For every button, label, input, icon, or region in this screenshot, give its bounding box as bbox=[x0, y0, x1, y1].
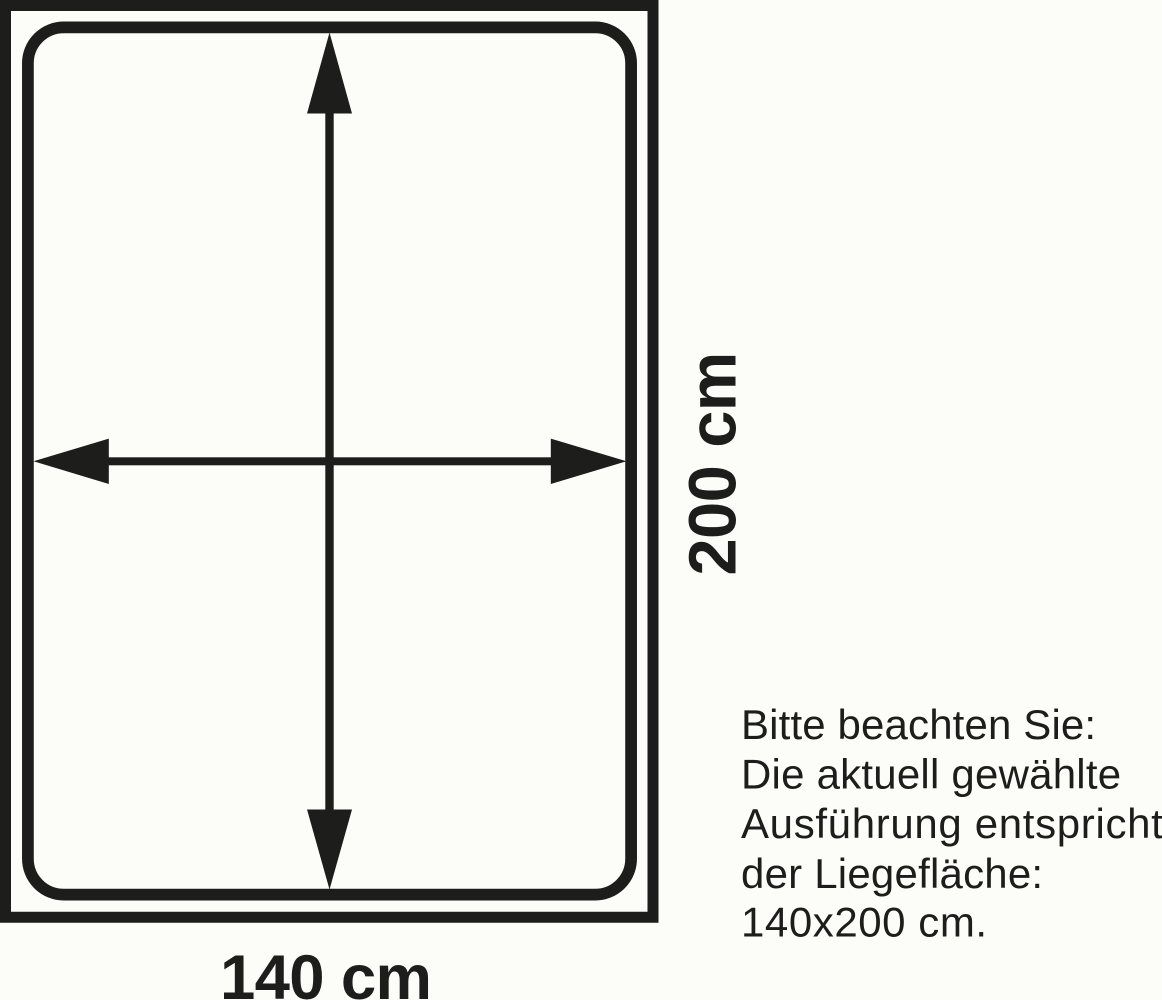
svg-text:200 cm: 200 cm bbox=[675, 352, 750, 576]
svg-text:Bitte beachten Sie:: Bitte beachten Sie: bbox=[741, 701, 1096, 748]
svg-text:Die aktuell gewählte: Die aktuell gewählte bbox=[741, 751, 1121, 798]
svg-text:140 cm: 140 cm bbox=[220, 943, 432, 1000]
svg-text:140x200 cm.: 140x200 cm. bbox=[741, 898, 987, 945]
svg-text:der Liegefläche:: der Liegefläche: bbox=[741, 850, 1043, 897]
svg-text:Ausführung entspricht: Ausführung entspricht bbox=[741, 800, 1162, 847]
